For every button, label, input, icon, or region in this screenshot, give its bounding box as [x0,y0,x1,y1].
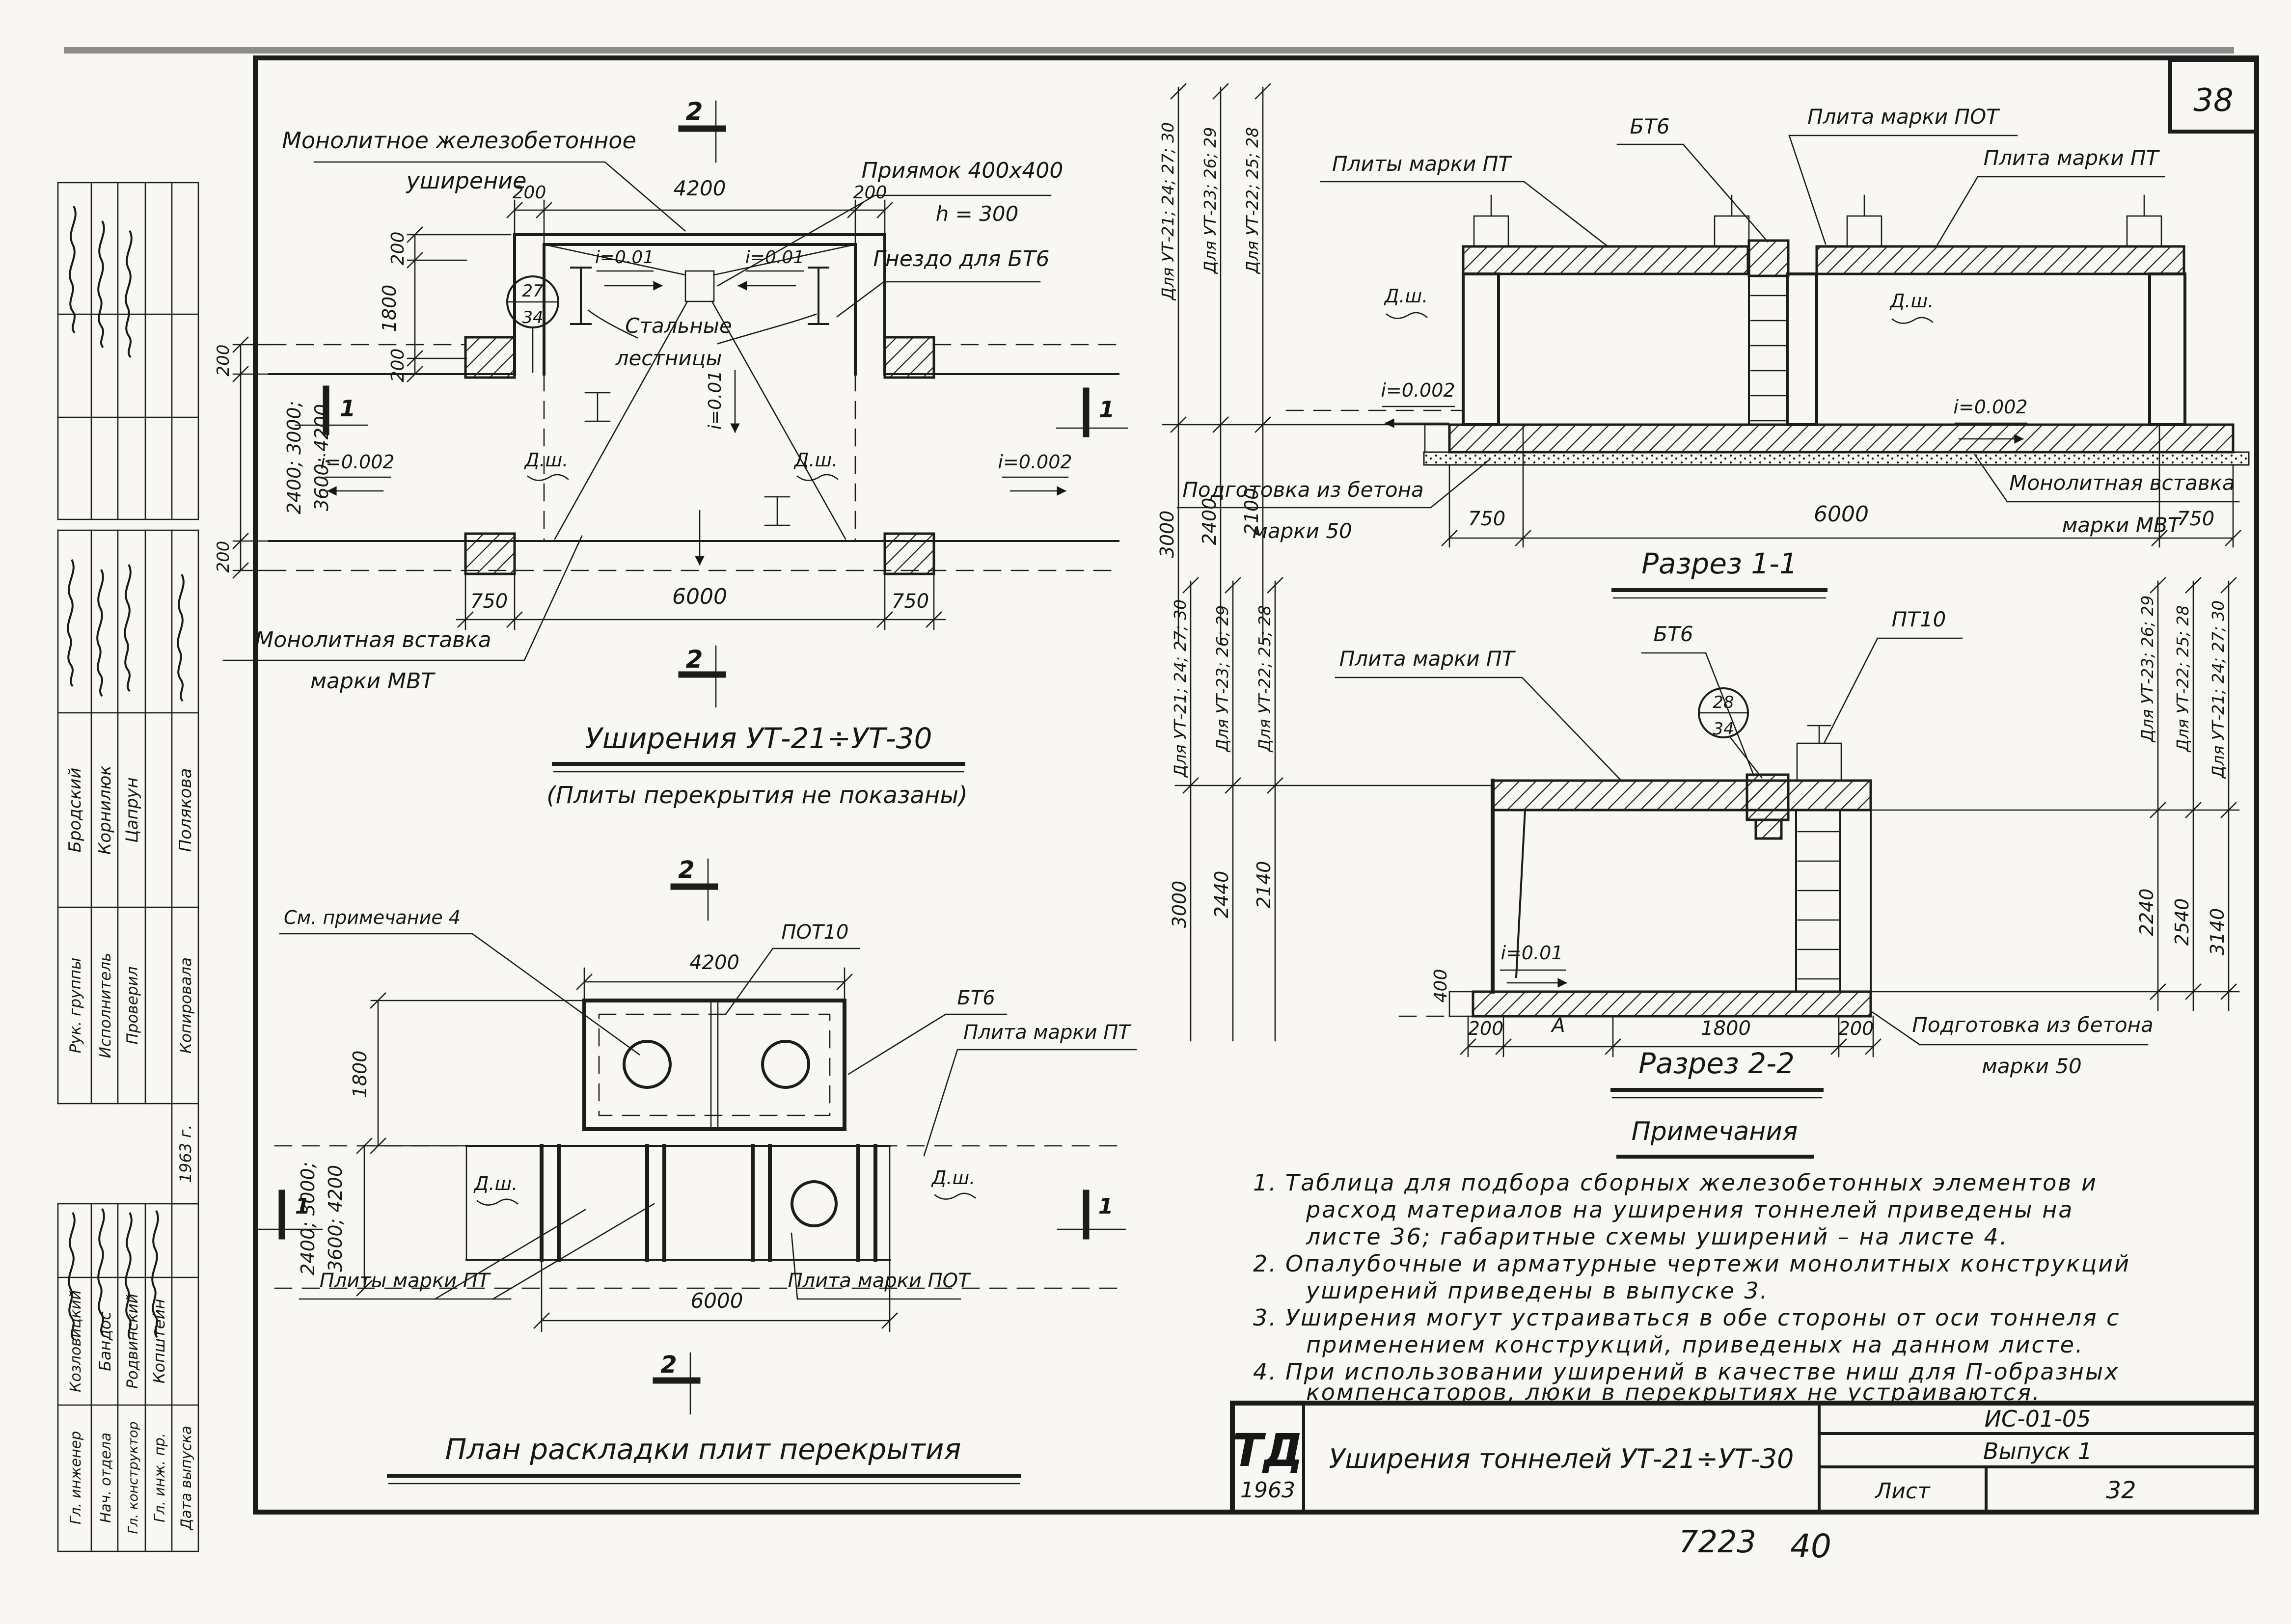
dim: 200 [214,541,233,573]
label-pot-plate: Плита марки ПОТ [788,1270,972,1292]
signature-scribble [125,565,131,691]
type-ref: Для УТ-23; 26; 29 [2138,595,2157,743]
section-1-1: Для УТ-21; 24; 27; 30 Для УТ-23; 26; 29 … [1156,84,2249,643]
monolithic-insert-hatch [465,534,515,574]
manager-name: Копштейн [150,1299,168,1384]
note-number: 3. [1253,1304,1278,1331]
type-ref: Для УТ-21; 24; 27; 30 [1171,599,1190,778]
note-line: уширений приведены в выпуске 3. [1305,1277,1769,1304]
callout-prep: Подготовка из бетона [1182,478,1424,502]
label-pt: Плита марки ПТ [1339,647,1516,671]
slope-label: i=0.01 [745,247,804,268]
post [1797,743,1841,781]
title-block: ТД 1963 Уширения тоннелей УТ-21÷УТ-30 ИС… [1232,1403,2256,1512]
section-2-2: Для УТ-21; 24; 27; 30 Для УТ-23; 26; 29 … [1169,578,2239,1098]
view-title: Разрез 1-1 [1641,547,1798,580]
dim: 200 [513,183,546,203]
type-ref: Для УТ-22; 25; 28 [2173,605,2192,753]
dim: 200 [853,183,887,203]
dim: 2540 [2171,898,2193,946]
ref-circle: 28 34 [1699,688,1762,778]
hatch-opening [792,1182,836,1226]
ladder-rungs [1798,832,1838,979]
dim: 3600; 4200 [325,1165,346,1272]
dim: 750 [892,590,929,613]
note-number: 1. [1253,1169,1278,1196]
type-ref: Для УТ-21; 24; 27; 30 [2209,600,2228,779]
staff-name: Бродский [65,768,85,853]
dim: 750 [2177,508,2214,530]
bt6-beam [1747,775,1788,820]
signature-scribble [98,221,104,348]
joint-label: Д.ш. [931,1167,976,1189]
dim: 2400 [1199,498,1220,545]
plan-slab-layout: 2 4200 См. примечание 4 ПОТ10 БТ6 Плита … [255,856,1136,1484]
manager-role: Гл. конструктор [126,1421,141,1534]
joint-label: Д.ш. [524,449,569,471]
dim: А [1550,1014,1565,1037]
dim: 400 [1431,969,1451,1003]
page-number: 38 [2193,82,2233,119]
bt6-beam [1749,241,1788,276]
type-ref: Для УТ-23; 26; 29 [1213,605,1232,753]
callout-ladders: Стальные [625,314,732,338]
manager-role: Дата выпуска [178,1426,194,1531]
manager-role: Нач. отдела [97,1433,114,1523]
callout-widening: уширение [406,167,527,194]
type-ref: Для УТ-22; 25; 28 [1255,605,1274,753]
joint-label: Д.ш. [793,449,838,471]
slab-pt [1463,246,1748,274]
dim: 6000 [691,1289,743,1313]
sheet-canvas: 38 Бродский Корнилюк Цапрун Полякова Рук… [0,0,2291,1624]
wall [1463,274,1499,425]
label-pot: Плита марки ПОТ [1807,105,2000,129]
callout-widening: Монолитное железобетонное [282,127,636,154]
section-mark-1: 1 [1099,396,1115,423]
signature-scribble [97,569,103,696]
dim: 1800 [379,285,400,332]
dim: 200 [1838,1018,1874,1039]
archive-stamp-number: 40 [1790,1527,1831,1565]
dim: 750 [1468,508,1505,530]
dim: 750 [470,590,508,613]
pit-400x400 [685,271,714,301]
view-subtitle: (Плиты перекрытия не показаны) [546,782,968,809]
slope-label: i=0.002 [1381,379,1455,401]
view-title: План раскладки плит перекрытия [445,1433,961,1466]
slope-label: i=0.01 [705,371,725,430]
manager-name: Родвинский [124,1294,141,1389]
dim: 3000 [1156,511,1178,558]
callout-socket: Гнездо для БТ6 [873,246,1049,271]
dim: 1800 [349,1051,371,1098]
note-line: Таблица для подбора сборных железобетонн… [1285,1169,2098,1196]
dim: 2400; 3000; [283,401,305,514]
post [2127,216,2161,246]
top-slab [1493,781,1871,810]
signature-scribble [126,231,132,357]
callout-ladders: лестницы [615,346,722,370]
slope-label: i=0.002 [998,451,1072,473]
slope-label: i=0.002 [1953,396,2027,418]
dim: 200 [388,349,408,382]
signature-scribble [68,560,74,686]
post [1715,216,1749,246]
staff-name: Цапрун [122,777,142,842]
view-title: Уширения УТ-21÷УТ-30 [585,722,932,755]
note-number: 2. [1253,1250,1278,1277]
sheet-number: 32 [2106,1477,2136,1504]
staff-role: Рук. группы [67,958,84,1054]
staff-role: Исполнитель [97,953,114,1058]
section-mark-1: 1 [1098,1194,1114,1219]
plan-widening: Монолитное железобетонное уширение Приям… [214,97,1127,809]
slab-pot [1817,246,2184,274]
callout-insert: Монолитная вставка [2009,471,2235,495]
type-ref: Для УТ-21; 24; 27; 30 [1158,122,1177,301]
dim: 2440 [1211,871,1232,919]
post [1474,216,1508,246]
callout-pit: Приямок 400х400 [862,158,1064,183]
note-line: листе 36; габаритные схемы уширений – на… [1306,1223,2008,1250]
signature-scribble [178,574,184,701]
scan-edge-artifact [64,47,2234,54]
org-logo-year: 1963 [1240,1478,1295,1503]
staff-role: Копировала [177,957,195,1054]
slope-label: i=0.01 [595,247,654,268]
callout-insert: Монолитная вставка [255,627,491,652]
floor-slab [1473,992,1871,1016]
section-mark-1: 1 [295,1194,310,1219]
section-mark-1: 1 [340,395,355,422]
label-bt6: БТ6 [1630,114,1669,138]
section-mark-2: 2 [686,645,703,674]
hatch-opening [763,1041,809,1087]
type-ref: Для УТ-23; 26; 29 [1200,127,1220,275]
callout-insert: марки МВТ [310,669,436,694]
label-pt: Плита марки ПТ [1984,146,2160,170]
label-pt-plates: Плиты марки ПТ [1332,152,1512,176]
issue-label: Выпуск 1 [1983,1438,2092,1464]
dim: 2240 [2136,889,2157,936]
manager-role: Гл. инж. пр. [151,1433,168,1522]
dim: 200 [1468,1018,1504,1039]
stamp-year: 1963 г. [176,1125,195,1183]
margin-stamps: Бродский Корнилюк Цапрун Полякова Рук. г… [58,183,198,1551]
doc-code: ИС-01-05 [1985,1406,2091,1432]
label-pot10: ПОТ10 [782,921,849,944]
post [1847,216,1882,246]
staff-name: Полякова [176,768,195,852]
notes-block: Примечания 1. Таблица для подбора сборны… [1253,1117,2130,1406]
joint-label: Д.ш. [1384,285,1428,307]
concrete-prep [1424,452,2249,465]
org-logo: ТД [1232,1424,1304,1477]
manager-name: Козловицкий [67,1290,84,1392]
callout-pit: h = 300 [936,202,1019,226]
ref-circle-bottom: 34 [522,308,543,327]
label-pt10: ПТ10 [1892,607,1946,631]
callout-prep: Подготовка из бетона [1912,1013,2154,1037]
dim: 6000 [1814,502,1869,527]
slope-label: i=0.01 [1500,942,1563,964]
monolithic-insert-hatch [885,337,934,378]
staff-stamp: Бродский Корнилюк Цапрун Полякова Рук. г… [58,530,198,1204]
section-mark-2: 2 [686,97,703,126]
ref-circle-top: 28 [1713,693,1734,712]
note-line: расход материалов на уширения тоннелей п… [1306,1196,2073,1223]
dim: 3000 [1169,881,1190,928]
dim: 3140 [2207,908,2228,956]
dim: 200 [214,345,233,377]
dim: 6000 [672,584,727,609]
joint-label: Д.ш. [1889,290,1934,312]
manager-name: Бандос [96,1311,114,1371]
drawing-title: Уширения тоннелей УТ-21÷УТ-30 [1329,1443,1794,1474]
section-mark-2: 2 [660,1351,677,1379]
dim: 2140 [1253,861,1275,909]
callout-prep: марки 50 [1252,519,1352,543]
section-mark-2: 2 [678,856,694,884]
callout-note: См. примечание 4 [284,907,461,928]
label-bt6: БТ6 [1653,622,1693,646]
ref-circle-top: 27 [522,281,544,301]
wall [2150,274,2185,425]
dim: 4200 [674,176,726,200]
monolithic-insert-hatch [885,534,934,574]
view-title: Разрез 2-2 [1638,1047,1795,1080]
manager-role: Гл. инженер [67,1431,84,1524]
dim: 200 [388,232,408,266]
dim: 1800 [1701,1017,1751,1040]
archive-stamp-code: 7223 [1679,1524,1756,1560]
notes-heading: Примечания [1632,1117,1798,1146]
label-bt6: БТ6 [957,987,995,1009]
sheet-label: Лист [1874,1479,1931,1504]
monolithic-insert-hatch [465,337,515,378]
drawing-sheet: 38 Бродский Корнилюк Цапрун Полякова Рук… [0,0,2291,1624]
dim: 4200 [689,951,739,974]
ref-circle-bottom: 34 [1713,719,1734,739]
joint-label: Д.ш. [473,1173,518,1194]
callout-prep: марки 50 [1982,1054,2082,1078]
management-stamp: Козловицкий Бандос Родвинский Копштейн Г… [58,1204,198,1551]
note-line: применением конструкций, приведеных на д… [1306,1331,2084,1358]
note-line: Уширения могут устраиваться в обе сторон… [1285,1304,2120,1331]
ladder-rungs [1751,296,1785,421]
type-ref: Для УТ-22; 25; 28 [1243,127,1262,275]
ladder-rail [1796,810,1871,992]
floor-slab [1449,425,2233,452]
note-number: 4. [1253,1358,1278,1385]
label-pt: Плита марки ПТ [963,1021,1132,1044]
staff-role: Проверил [124,967,141,1045]
approval-grid [58,183,198,519]
wall [1787,274,1817,425]
staff-name: Корнилюк [95,765,115,855]
note-line: Опалубочные и арматурные чертежи монолит… [1285,1250,2130,1277]
